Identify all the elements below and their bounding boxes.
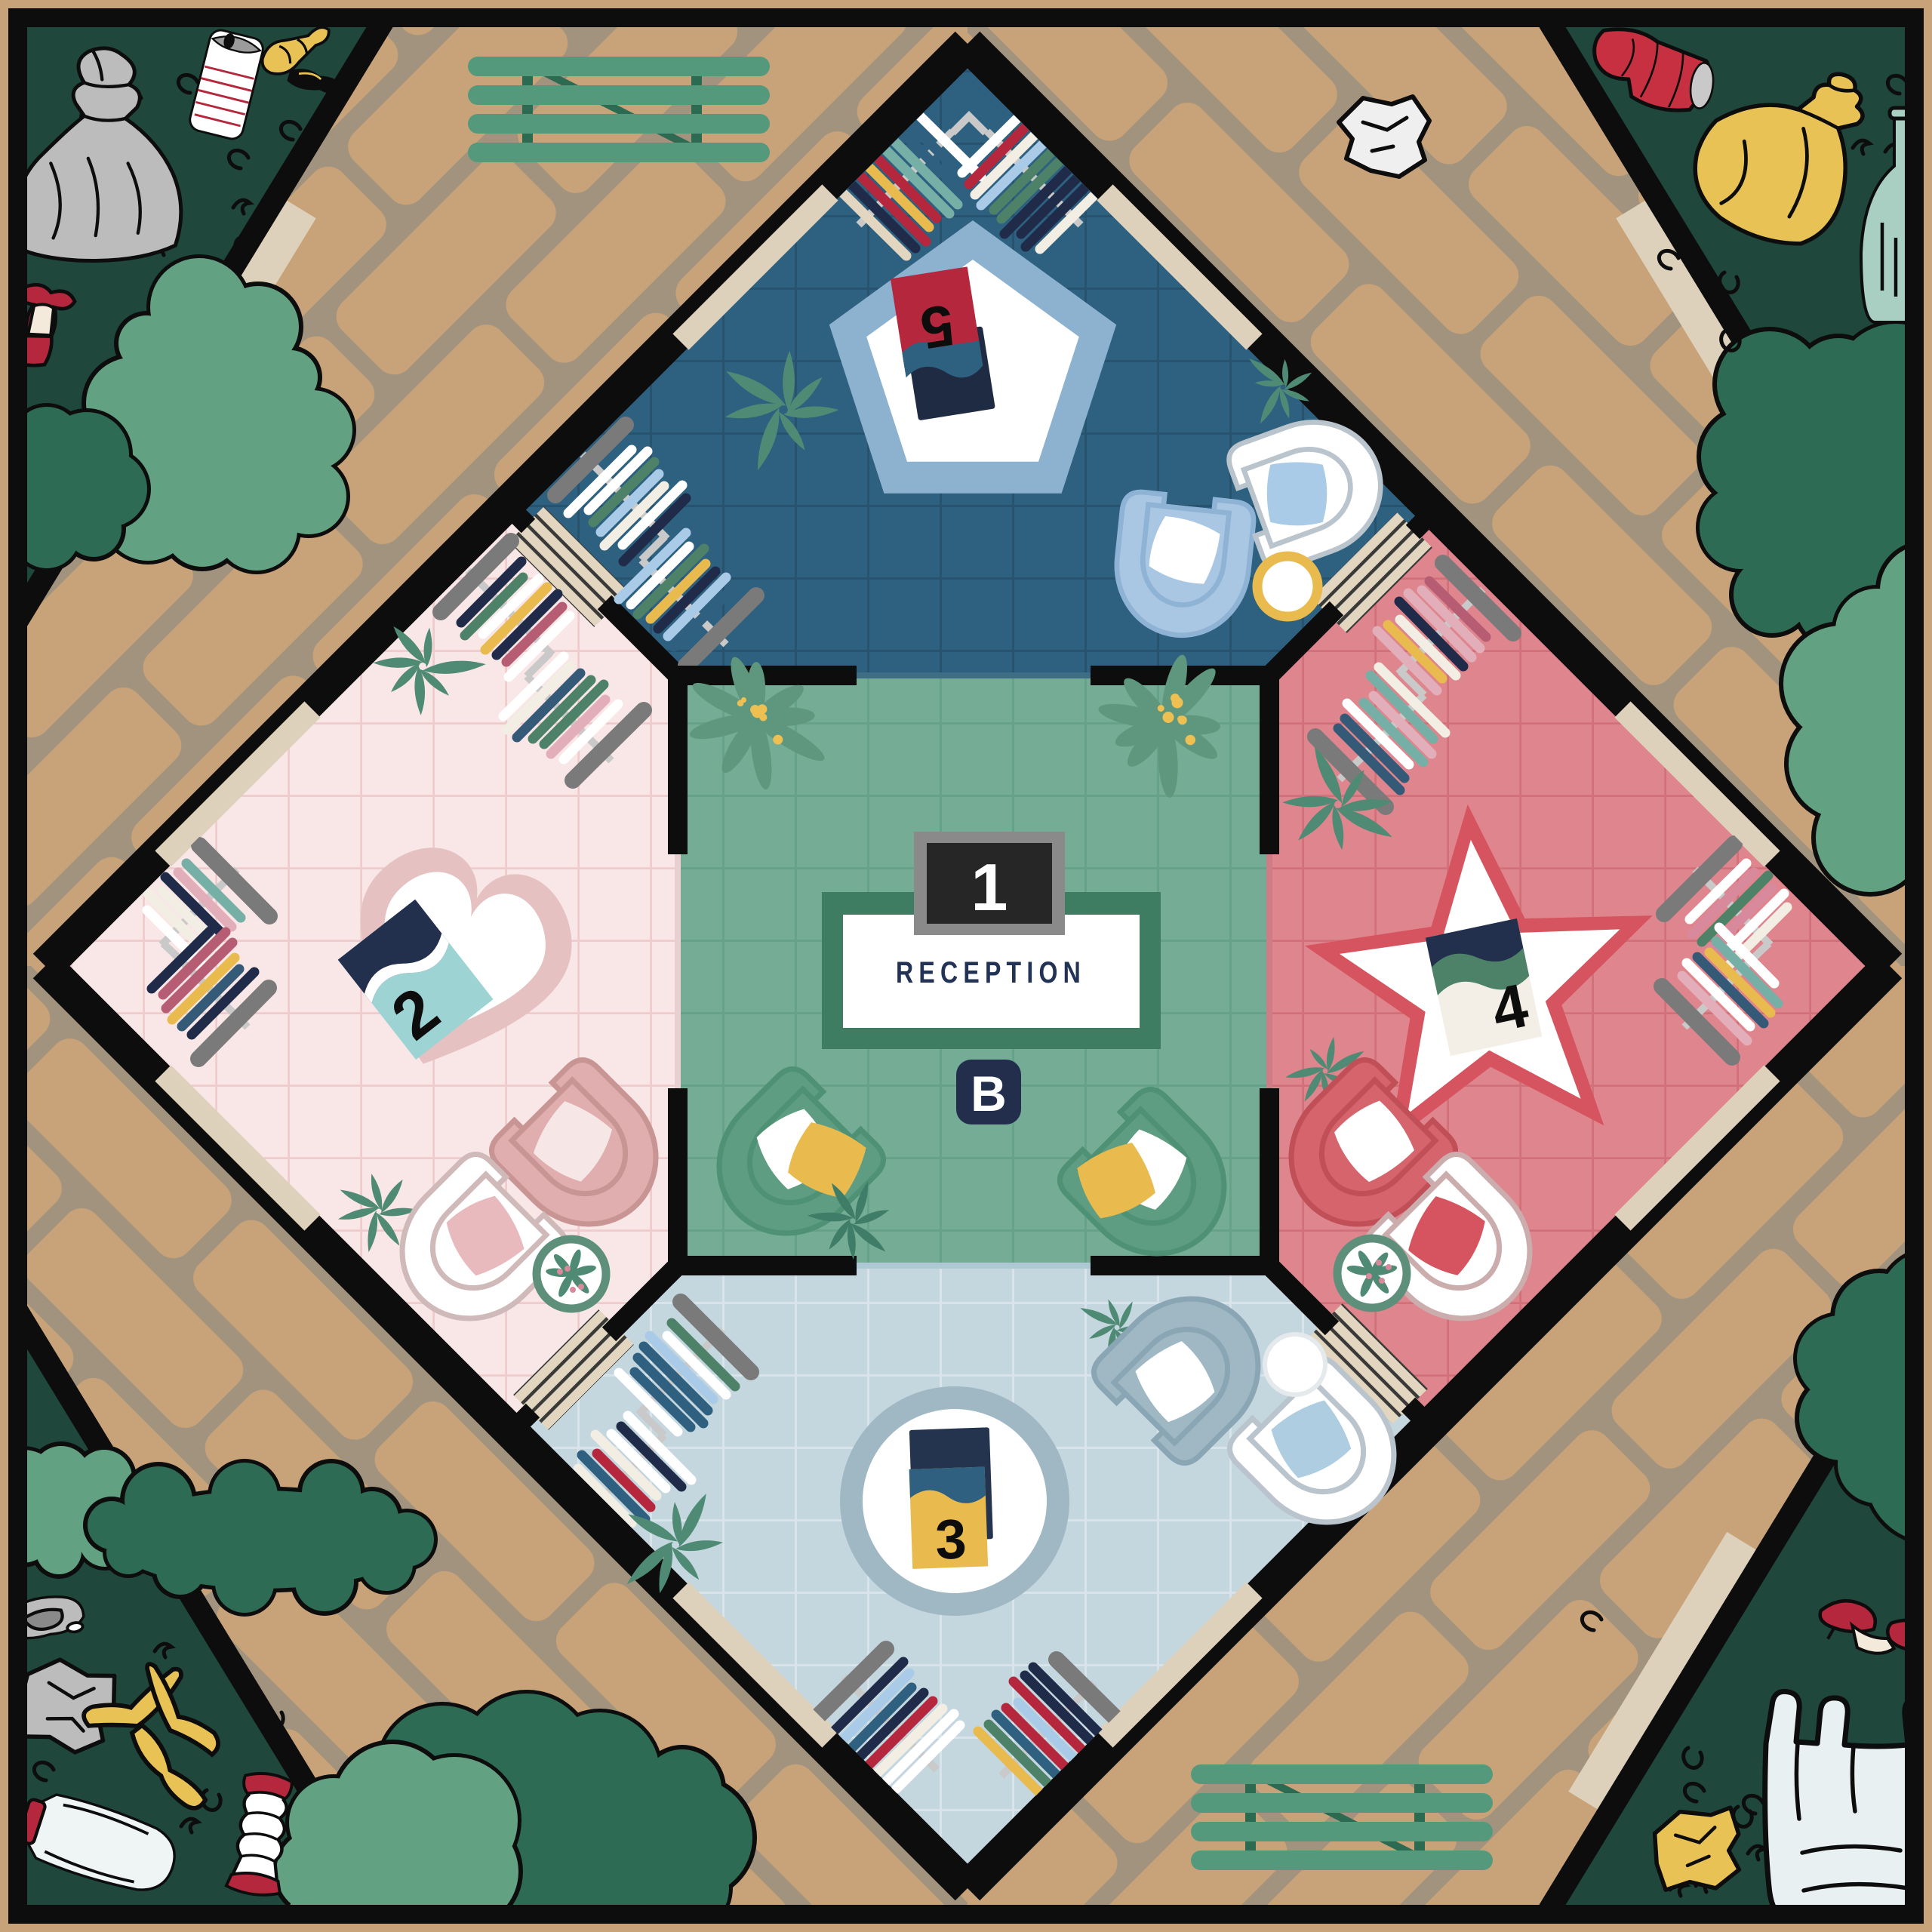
svg-text:B: B [971,1066,1007,1121]
svg-text:RECEPTION: RECEPTION [896,956,1086,989]
svg-text:3: 3 [934,1507,968,1571]
svg-text:1: 1 [971,850,1008,924]
